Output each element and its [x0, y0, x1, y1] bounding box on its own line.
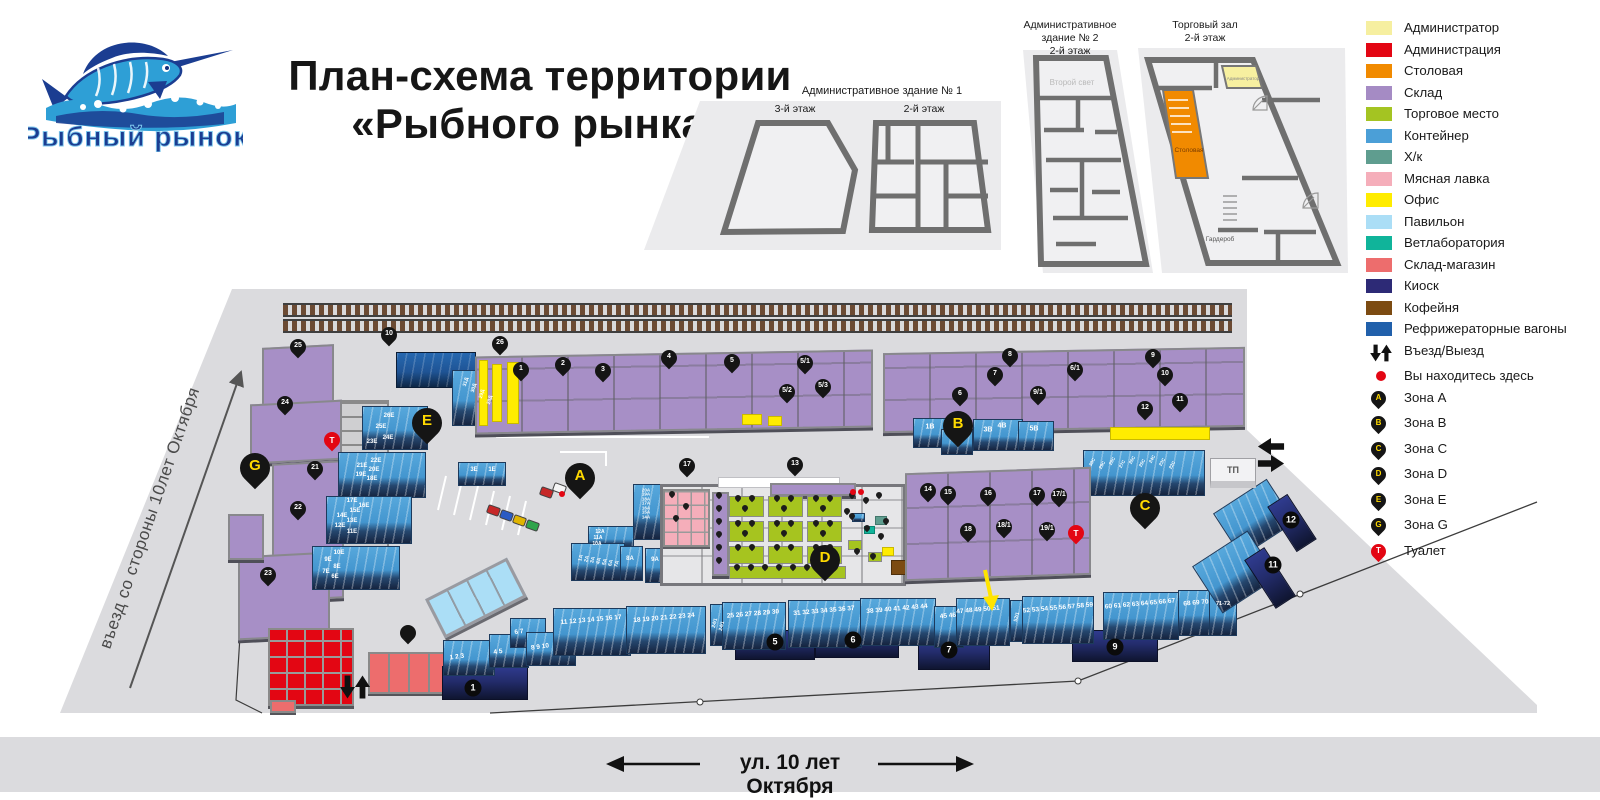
legend-item: Ветлаборатория — [1366, 235, 1592, 251]
legend: АдминистраторАдминистрацияСтоловаяСкладТ… — [1366, 20, 1592, 568]
legend-item: Рефрижераторные вагоны — [1366, 321, 1592, 337]
warehouse-block — [228, 514, 264, 560]
plan3-title-line1: Торговый зал — [1172, 19, 1237, 31]
legend-item-label: Склад-магазин — [1396, 257, 1495, 273]
legend-item-label: Павильон — [1396, 214, 1464, 230]
container-block — [1083, 450, 1205, 496]
entrance-exit-icon — [1254, 438, 1288, 472]
pin-number: 18 — [960, 526, 976, 533]
legend-pin-icon: A — [1366, 390, 1396, 410]
pin-letter: B — [1371, 418, 1386, 427]
trading-stalls-block — [729, 546, 764, 564]
pin-number: 5/1 — [797, 358, 813, 365]
legend-item: Склад — [1366, 85, 1592, 101]
container-label: 11Е — [347, 529, 357, 535]
pin-number: 6 — [952, 390, 968, 397]
legend-item: Администратор — [1366, 20, 1592, 36]
legend-item: GЗона G — [1366, 517, 1592, 537]
legend-item: Вы находитесь здесь — [1366, 368, 1592, 384]
you-are-here-dot — [559, 491, 565, 497]
plan1-floor2-label: 2-й этаж — [904, 103, 945, 115]
container-label: 25Е — [376, 424, 387, 430]
trading-stalls-block — [768, 546, 803, 564]
pin-number: 3 — [595, 366, 611, 373]
plan2-title-line2: здание № 2 — [1042, 32, 1099, 44]
pin-number: 21 — [307, 464, 323, 471]
legend-color-swatch — [1366, 107, 1392, 121]
legend-item-label: Кофейня — [1396, 300, 1459, 316]
legend-icon-cell — [1366, 106, 1396, 122]
pin-number: 26 — [492, 339, 508, 346]
pin-number: 5/2 — [779, 387, 795, 394]
container-label: 13Е — [347, 518, 358, 524]
container-label: 3В — [984, 427, 993, 434]
legend-item-label: Киоск — [1396, 278, 1439, 294]
legend-item-label: Зона B — [1396, 415, 1446, 431]
pin-number: 22 — [290, 504, 306, 511]
kiosk-row-number: 9 — [1107, 639, 1124, 656]
legend-item-label: Склад — [1396, 85, 1442, 101]
meat-shop-building — [663, 489, 710, 547]
legend-item-label: Столовая — [1396, 63, 1463, 79]
container-label: ТП — [1227, 465, 1239, 475]
legend-color-swatch — [1366, 43, 1392, 57]
container-block — [1178, 590, 1212, 636]
pin-letter: D — [1371, 469, 1386, 478]
legend-item-label: Зона D — [1396, 466, 1447, 482]
legend-icon-cell — [1366, 257, 1396, 273]
you-are-here-dot — [850, 489, 856, 495]
legend-color-swatch — [1366, 236, 1392, 250]
legend-icon-cell: G — [1366, 517, 1396, 537]
legend-icon-cell: D — [1366, 466, 1396, 486]
legend-item: Въезд/Выезд — [1366, 343, 1592, 363]
legend-color-swatch — [1366, 86, 1392, 100]
legend-icon-cell: Т — [1366, 543, 1396, 563]
container-label: 10А — [592, 541, 601, 547]
legend-item: Киоск — [1366, 278, 1592, 294]
kiosk-row-number: 1 — [465, 680, 482, 697]
legend-color-swatch — [1366, 301, 1392, 315]
pin-number: 17/1 — [1051, 491, 1067, 498]
legend-icon-cell: A — [1366, 390, 1396, 410]
container-label: 12Е — [335, 523, 346, 529]
legend-icon-cell — [1366, 149, 1396, 165]
container-label: 5В — [1030, 426, 1039, 433]
legend-color-swatch — [1366, 150, 1392, 164]
pin-letter: Т — [1371, 546, 1386, 555]
legend-item: Павильон — [1366, 214, 1592, 230]
legend-icon-cell — [1366, 278, 1396, 294]
legend-item: Торговое место — [1366, 106, 1592, 122]
legend-item: Администрация — [1366, 42, 1592, 58]
you-are-here-dot — [1376, 371, 1386, 381]
legend-pin-icon: Т — [1366, 543, 1396, 563]
container-block — [338, 452, 426, 498]
railroad-track — [283, 319, 1232, 333]
legend-item-label: Зона A — [1396, 390, 1446, 406]
zone-letter: D — [810, 549, 840, 566]
legend-item-label: Мясная лавка — [1396, 171, 1490, 187]
container-label: 14А — [642, 515, 650, 520]
legend-icon-cell — [1366, 171, 1396, 187]
warehouse-store-building — [270, 700, 296, 713]
plan3-garderob-label: Гардероб — [1206, 235, 1235, 243]
entrance-exit-icon — [340, 672, 370, 702]
plan1-title: Административное здание № 1 — [802, 85, 962, 97]
container-label: 6Е — [331, 574, 338, 580]
pin-number: 24 — [277, 399, 293, 406]
legend-color-swatch — [1366, 322, 1392, 336]
pin-number: 14 — [920, 486, 936, 493]
legend-color-swatch — [1366, 21, 1392, 35]
container-label: 45 46 — [940, 612, 957, 620]
legend-icon-cell — [1366, 214, 1396, 230]
container-label: 8А — [626, 556, 634, 562]
pin-number: 19/1 — [1039, 525, 1055, 532]
container-label: 26Е — [384, 413, 395, 419]
floorplans: Административное здание № 1 3-й этаж 2-й… — [0, 0, 1600, 300]
railroad-track — [283, 303, 1232, 317]
container-label: 4В — [998, 423, 1007, 430]
pin-number: 16 — [980, 490, 996, 497]
legend-item-label: Контейнер — [1396, 128, 1469, 144]
legend-item: ТТуалет — [1366, 543, 1592, 563]
kiosk-row-number: 11 — [1265, 557, 1282, 574]
container-label: 6 7 — [514, 628, 524, 636]
container-label: 7Е — [322, 569, 329, 575]
legend-pin-icon: D — [1366, 466, 1396, 486]
plan3-administrator-label: Администратор — [1227, 76, 1260, 81]
container-label: 24Е — [383, 435, 394, 441]
legend-item-label: Торговое место — [1396, 106, 1499, 122]
pin-number: 10 — [1157, 370, 1173, 377]
pin-number: 11 — [1172, 396, 1188, 403]
legend-item-label: Туалет — [1396, 543, 1446, 559]
legend-color-swatch — [1366, 258, 1392, 272]
container-label: 19Е — [356, 472, 367, 478]
legend-item: Офис — [1366, 192, 1592, 208]
legend-icon-cell — [1366, 42, 1396, 58]
fish-market-site-plan: Рыбный рынок План-схема территории «Рыбн… — [0, 0, 1600, 800]
legend-item: Контейнер — [1366, 128, 1592, 144]
pin-letter: A — [1371, 393, 1386, 402]
warehouse-block — [770, 483, 856, 496]
legend-item: Склад-магазин — [1366, 257, 1592, 273]
legend-item-label: Въезд/Выезд — [1396, 343, 1484, 359]
pin-number: 6/1 — [1067, 365, 1083, 372]
container-label: 8Е — [333, 564, 340, 570]
legend-item: DЗона D — [1366, 466, 1592, 486]
kiosk-row-number: 5 — [767, 634, 784, 651]
kiosk-row-number: 12 — [1283, 512, 1300, 529]
pin-letter: E — [1371, 495, 1386, 504]
pin-letter: C — [1371, 444, 1386, 453]
legend-item-label: Зона C — [1396, 441, 1447, 457]
container-block — [620, 546, 643, 581]
pin-number: 9 — [1145, 352, 1161, 359]
pin-number: 23 — [260, 570, 276, 577]
container-label: 20Е — [369, 467, 380, 473]
office-block — [768, 416, 782, 426]
container-label: 71-72 — [1216, 601, 1230, 607]
zone-letter: C — [1130, 497, 1160, 514]
legend-item: BЗона B — [1366, 415, 1592, 435]
legend-item: Мясная лавка — [1366, 171, 1592, 187]
pin-number: 1 — [513, 365, 529, 372]
pin-number: 5/3 — [815, 382, 831, 389]
container-label: 15Е — [350, 508, 361, 514]
container-label: 9Е — [324, 557, 331, 563]
kiosk-row-number: 7 — [941, 642, 958, 659]
street-label: ул. 10 лет Октября — [700, 751, 880, 799]
pin-number: 12 — [1137, 404, 1153, 411]
plan1-floor3-label: 3-й этаж — [775, 103, 816, 115]
legend-color-swatch — [1366, 193, 1392, 207]
legend-icon-cell: B — [1366, 415, 1396, 435]
container-label: 21Е — [357, 463, 368, 469]
legend-icon-cell — [1366, 20, 1396, 36]
legend-color-swatch — [1366, 172, 1392, 186]
legend-icon-cell — [1366, 321, 1396, 337]
pin-number: 10 — [381, 330, 397, 337]
legend-item: Х/к — [1366, 149, 1592, 165]
legend-icon-cell: C — [1366, 441, 1396, 461]
pin-number: 5 — [724, 357, 740, 364]
legend-color-swatch — [1366, 279, 1392, 293]
plan2-room-label: Второй свет — [1050, 78, 1095, 87]
legend-icon-cell — [1366, 128, 1396, 144]
legend-icon-cell — [1366, 192, 1396, 208]
legend-item-label: Зона E — [1396, 492, 1446, 508]
container-label: 10Е — [334, 550, 345, 556]
container-block — [312, 546, 400, 590]
legend-icon-cell — [1366, 85, 1396, 101]
container-label: 1В — [926, 424, 935, 431]
legend-item: CЗона C — [1366, 441, 1592, 461]
container-label: 4 5 — [493, 648, 503, 656]
pin-number: 15 — [940, 489, 956, 496]
legend-pin-icon: C — [1366, 441, 1396, 461]
pin-number: 9/1 — [1030, 389, 1046, 396]
legend-item-label: Рефрижераторные вагоны — [1396, 321, 1567, 337]
legend-pin-icon: B — [1366, 415, 1396, 435]
legend-icon-cell — [1366, 235, 1396, 251]
legend-icon-cell — [1366, 63, 1396, 79]
legend-pin-icon: G — [1366, 517, 1396, 537]
container-label: 18Е — [367, 476, 378, 482]
plan3-title-line2: 2-й этаж — [1185, 32, 1226, 44]
street-band: ул. 10 лет Октября — [0, 737, 1600, 792]
legend-pin-icon: E — [1366, 492, 1396, 512]
legend-item-label: Офис — [1396, 192, 1439, 208]
legend-item-label: Администрация — [1396, 42, 1501, 58]
pin-letter: Т — [1068, 528, 1084, 538]
zone-letter: G — [240, 457, 270, 474]
legend-icon-cell — [1366, 300, 1396, 316]
legend-color-swatch — [1366, 215, 1392, 229]
legend-item-label: Х/к — [1396, 149, 1422, 165]
container-label: 23Е — [367, 439, 378, 445]
pin-number: 17 — [679, 461, 695, 468]
legend-item: EЗона E — [1366, 492, 1592, 512]
container-label: 9А — [651, 557, 659, 563]
container-label: 17Е — [347, 498, 358, 504]
office-block — [1110, 427, 1210, 440]
legend-item-label: Вы находитесь здесь — [1396, 368, 1534, 384]
legend-icon-cell — [1366, 368, 1396, 384]
legend-icon-cell: E — [1366, 492, 1396, 512]
pin-letter: Т — [324, 435, 340, 445]
pin-letter: G — [1371, 520, 1386, 529]
pin-number: 17 — [1029, 490, 1045, 497]
entrance-exit-icon — [1366, 343, 1396, 363]
plan3-stolovaya-label: Столовая — [1174, 147, 1204, 154]
kiosk-row-number: 6 — [845, 632, 862, 649]
plan2-title-line1: Административное — [1023, 19, 1116, 31]
legend-item: Кофейня — [1366, 300, 1592, 316]
pin-number: 8 — [1002, 351, 1018, 358]
container-block — [458, 462, 506, 486]
legend-item-label: Ветлаборатория — [1396, 235, 1505, 251]
legend-item: AЗона A — [1366, 390, 1592, 410]
pin-number: 7 — [987, 370, 1003, 377]
legend-color-swatch — [1366, 64, 1392, 78]
office-block — [882, 547, 894, 556]
legend-item: Столовая — [1366, 63, 1592, 79]
pin-number: 4 — [661, 353, 677, 360]
legend-color-swatch — [1366, 129, 1392, 143]
legend-item-label: Администратор — [1396, 20, 1499, 36]
container-label: 1Е — [488, 467, 495, 473]
pin-number: 18/1 — [996, 522, 1012, 529]
pin-number: 13 — [787, 460, 803, 467]
container-label: 3Е — [470, 467, 477, 473]
pin-number: 25 — [290, 342, 306, 349]
pin-number: 2 — [555, 360, 571, 367]
zone-letter: B — [943, 415, 973, 432]
office-block — [492, 364, 502, 422]
legend-item-label: Зона G — [1396, 517, 1448, 533]
zone-letter: A — [565, 467, 595, 484]
zone-letter: E — [412, 412, 442, 429]
container-label: 22Е — [371, 458, 382, 464]
office-block — [742, 414, 762, 425]
you-are-here-dot — [858, 489, 864, 495]
